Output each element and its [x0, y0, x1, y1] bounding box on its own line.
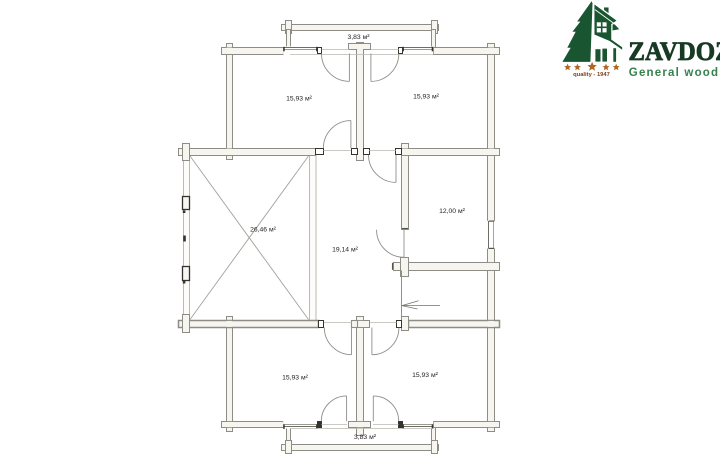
svg-text:General wood: General wood: [629, 67, 719, 79]
svg-text:quality - 1947: quality - 1947: [573, 72, 610, 78]
svg-text:19,14 м²: 19,14 м²: [332, 247, 359, 254]
svg-text:15,93 м²: 15,93 м²: [412, 372, 439, 379]
svg-text:3,83 м²: 3,83 м²: [347, 34, 370, 41]
svg-text:26,46 м²: 26,46 м²: [250, 226, 277, 233]
svg-text:15,93 м²: 15,93 м²: [282, 374, 309, 381]
svg-text:3,83 м²: 3,83 м²: [354, 434, 377, 441]
svg-text:ZAVDOZA: ZAVDOZA: [628, 36, 720, 66]
svg-text:15,93 м²: 15,93 м²: [413, 93, 440, 100]
svg-text:15,93 м²: 15,93 м²: [286, 95, 313, 102]
svg-text:12,00 м²: 12,00 м²: [439, 208, 466, 215]
